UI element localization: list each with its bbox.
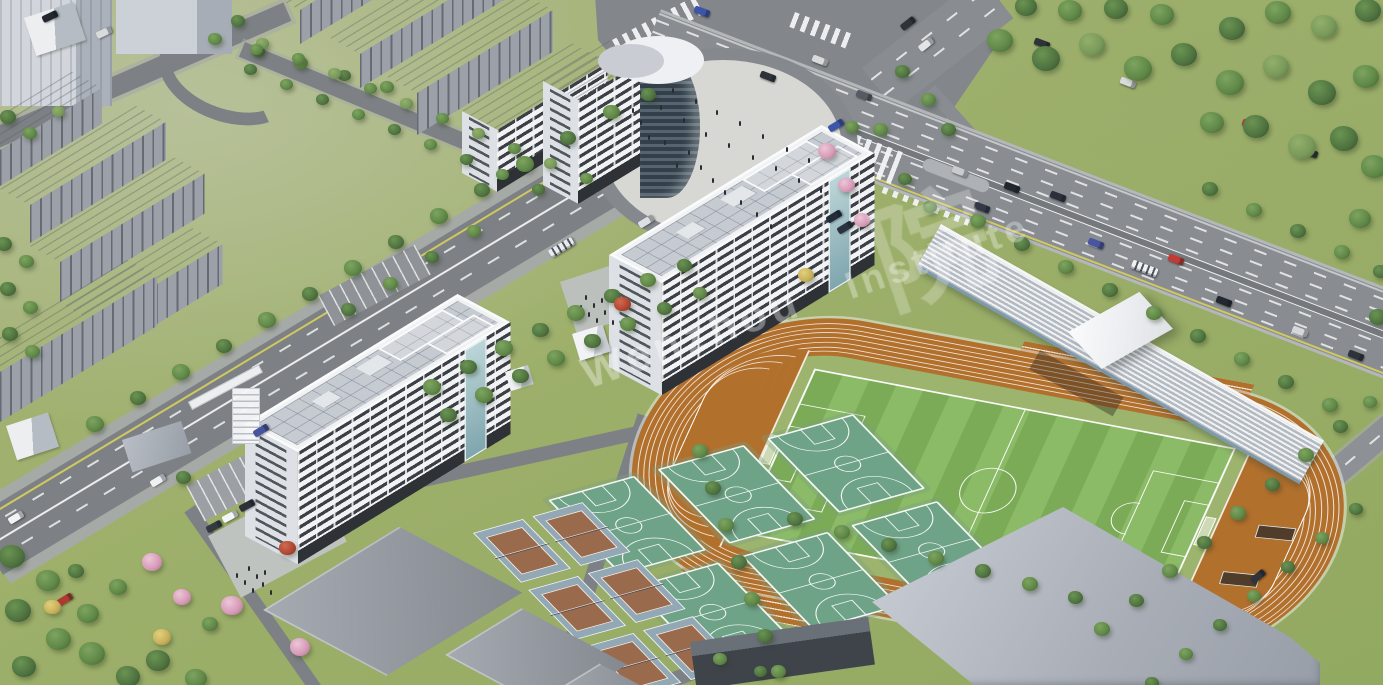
tree — [109, 579, 127, 595]
tree — [1298, 448, 1314, 462]
tree — [280, 79, 293, 90]
tree — [44, 600, 61, 615]
tree — [693, 287, 707, 299]
tree — [425, 251, 439, 263]
tree — [436, 113, 449, 124]
tree — [771, 665, 786, 678]
tree — [921, 93, 936, 106]
tree — [754, 666, 767, 677]
tree — [532, 184, 545, 195]
tree — [1349, 503, 1363, 515]
tree — [290, 638, 310, 656]
tree — [614, 297, 631, 312]
tree — [279, 541, 296, 556]
tree — [19, 255, 34, 268]
tree — [231, 15, 245, 27]
tree — [208, 33, 222, 45]
tree — [757, 629, 773, 643]
tree — [845, 121, 859, 133]
tree — [1349, 209, 1371, 228]
tree — [77, 604, 99, 623]
tree — [380, 81, 394, 93]
tree — [1369, 309, 1383, 325]
tree — [1230, 506, 1246, 520]
tree — [713, 653, 727, 665]
tree — [36, 570, 60, 591]
tree — [1068, 591, 1083, 604]
tree — [1104, 0, 1128, 19]
tree — [1058, 260, 1074, 274]
tree — [460, 360, 477, 375]
tree — [881, 538, 897, 552]
tree — [316, 94, 329, 105]
tree — [5, 599, 31, 622]
tree — [1247, 590, 1261, 602]
tree — [641, 88, 656, 101]
tree — [516, 156, 534, 172]
tree — [987, 29, 1013, 52]
tree — [388, 235, 404, 249]
tree — [512, 369, 529, 384]
tree — [116, 666, 140, 685]
tree — [657, 302, 672, 315]
tree — [1150, 4, 1174, 25]
tree — [1015, 0, 1037, 16]
tree — [46, 628, 71, 650]
tree — [202, 617, 218, 631]
tree — [1353, 65, 1379, 88]
tree — [68, 564, 84, 578]
tree — [1246, 203, 1262, 217]
tree — [1079, 33, 1105, 56]
tree — [352, 109, 365, 120]
tree — [1363, 396, 1377, 408]
tree — [475, 387, 493, 403]
tree — [2, 327, 18, 341]
tree — [544, 158, 557, 169]
tree — [344, 260, 362, 276]
tree — [383, 277, 398, 290]
tree — [1322, 398, 1338, 412]
tree — [173, 589, 191, 605]
tree — [1213, 619, 1227, 631]
tree — [0, 110, 16, 124]
tree — [941, 123, 956, 136]
tree — [1022, 577, 1038, 591]
tree — [1373, 265, 1383, 278]
tree — [818, 143, 836, 159]
tree — [1145, 677, 1159, 685]
tree — [341, 303, 356, 316]
tree — [1129, 594, 1144, 607]
tree — [423, 379, 441, 395]
tree — [1171, 43, 1197, 66]
tree — [292, 53, 305, 64]
tree — [1102, 283, 1118, 297]
tree — [560, 131, 576, 145]
tree — [1355, 0, 1381, 22]
tree — [388, 124, 401, 135]
tree — [508, 143, 521, 154]
tree — [705, 481, 721, 495]
tree — [1216, 70, 1244, 95]
tree — [474, 183, 490, 197]
tree — [258, 312, 276, 328]
tree — [532, 323, 549, 338]
tree — [216, 339, 232, 353]
tree — [430, 208, 448, 224]
tree — [1179, 648, 1193, 660]
tree — [1315, 532, 1329, 544]
tree — [12, 656, 36, 677]
tree — [1146, 306, 1162, 320]
tree — [547, 350, 565, 366]
tree — [142, 553, 162, 571]
tree — [1202, 182, 1218, 196]
tree — [400, 98, 413, 109]
tree — [1243, 115, 1269, 138]
campus-aerial-rendering: Wenzhou 院 Institute — [0, 0, 1383, 685]
tree — [1265, 478, 1280, 491]
tree — [1308, 80, 1336, 105]
tree — [495, 340, 513, 356]
tree — [176, 471, 191, 484]
tree — [460, 154, 473, 165]
tree — [1094, 622, 1110, 636]
tree — [798, 268, 814, 282]
tree — [0, 282, 16, 296]
tree — [1219, 17, 1245, 40]
tree — [580, 173, 593, 184]
tree — [467, 225, 481, 237]
tree — [731, 555, 747, 569]
tree — [328, 68, 341, 79]
tree — [1334, 245, 1350, 259]
tree — [1200, 112, 1224, 133]
tree — [1330, 126, 1358, 151]
tree — [895, 65, 910, 78]
tree — [640, 273, 656, 287]
tree — [250, 44, 263, 55]
tree — [567, 305, 585, 321]
tree — [153, 629, 171, 645]
tree — [1263, 55, 1289, 78]
tree — [440, 408, 457, 423]
tree — [1281, 561, 1295, 573]
tree — [424, 139, 437, 150]
tree — [244, 64, 257, 75]
tree — [1234, 352, 1250, 366]
tree — [1311, 15, 1337, 38]
tree — [364, 83, 377, 94]
tree — [52, 106, 65, 117]
tree — [1265, 1, 1291, 24]
tree — [185, 669, 207, 685]
tree — [1361, 155, 1383, 178]
tree — [1278, 375, 1294, 389]
tree — [834, 525, 850, 539]
tree — [1124, 56, 1152, 81]
tree — [23, 301, 38, 314]
tree — [172, 364, 190, 380]
tree — [603, 105, 620, 120]
tree — [0, 237, 12, 251]
tree — [79, 642, 105, 665]
tree — [692, 444, 708, 458]
tree — [928, 551, 944, 565]
tree — [620, 317, 636, 331]
tree — [146, 650, 170, 671]
tree — [1290, 224, 1306, 238]
tree — [718, 518, 734, 532]
tree — [1032, 46, 1060, 71]
tree — [677, 259, 692, 272]
tree — [302, 287, 318, 301]
tree — [0, 545, 25, 568]
tree — [1162, 564, 1178, 578]
tree — [744, 592, 760, 606]
tree — [873, 123, 888, 136]
tree — [1333, 420, 1348, 433]
tree — [86, 416, 104, 432]
tree — [25, 345, 40, 358]
tree — [975, 564, 991, 578]
tree — [787, 512, 803, 526]
tree — [1190, 329, 1206, 343]
tree — [496, 169, 509, 180]
tree — [23, 127, 37, 139]
tree — [1058, 0, 1082, 21]
tree — [472, 128, 485, 139]
tree — [1288, 134, 1316, 159]
tree — [130, 391, 146, 405]
tree — [1197, 536, 1212, 549]
tree — [221, 596, 243, 615]
